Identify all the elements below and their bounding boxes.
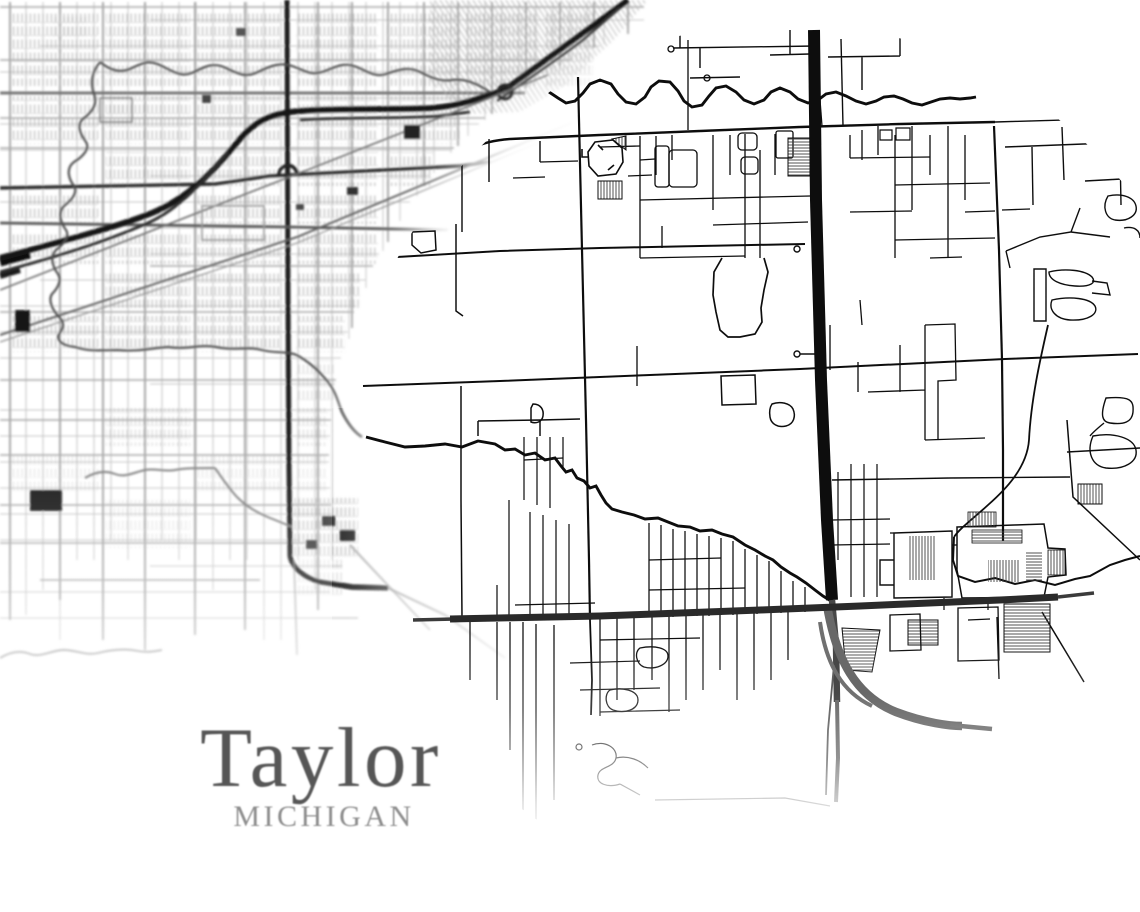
svg-text:Taylor: Taylor	[200, 711, 442, 805]
svg-text:MICHIGAN: MICHIGAN	[233, 800, 414, 833]
